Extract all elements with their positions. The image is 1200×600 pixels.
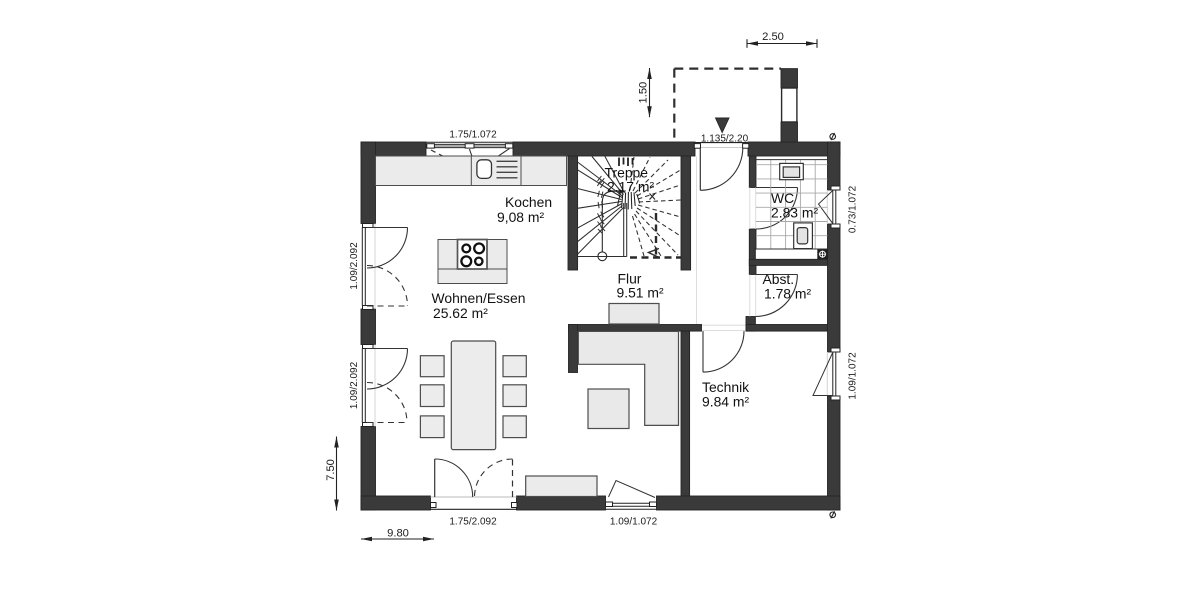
svg-text:1.09/1.072: 1.09/1.072 xyxy=(848,352,859,400)
svg-text:1.09/1.072: 1.09/1.072 xyxy=(610,517,658,528)
svg-text:9.84 m²: 9.84 m² xyxy=(702,394,749,410)
svg-text:25.62 m²: 25.62 m² xyxy=(433,305,488,321)
svg-text:Kochen: Kochen xyxy=(505,194,552,210)
svg-text:2.83 m²: 2.83 m² xyxy=(771,205,818,221)
svg-text:Wohnen/Essen: Wohnen/Essen xyxy=(432,290,526,306)
svg-text:0.73/1.072: 0.73/1.072 xyxy=(848,185,859,233)
svg-text:9.80: 9.80 xyxy=(387,528,409,540)
svg-text:1.75/1.072: 1.75/1.072 xyxy=(449,130,497,141)
svg-text:1.09/2.092: 1.09/2.092 xyxy=(349,242,360,290)
svg-text:2.50: 2.50 xyxy=(762,31,784,43)
svg-text:1.75/2.092: 1.75/2.092 xyxy=(449,517,497,528)
svg-text:9,08 m²: 9,08 m² xyxy=(497,209,544,225)
svg-text:7.50: 7.50 xyxy=(325,459,337,481)
svg-text:1.09/2.092: 1.09/2.092 xyxy=(349,361,360,409)
svg-text:1.135/2.20: 1.135/2.20 xyxy=(701,134,749,145)
svg-text:9.51 m²: 9.51 m² xyxy=(617,285,664,301)
svg-text:2.17 m²: 2.17 m² xyxy=(607,179,654,195)
svg-text:1.78 m²: 1.78 m² xyxy=(764,286,811,302)
svg-text:1.50: 1.50 xyxy=(638,82,650,104)
